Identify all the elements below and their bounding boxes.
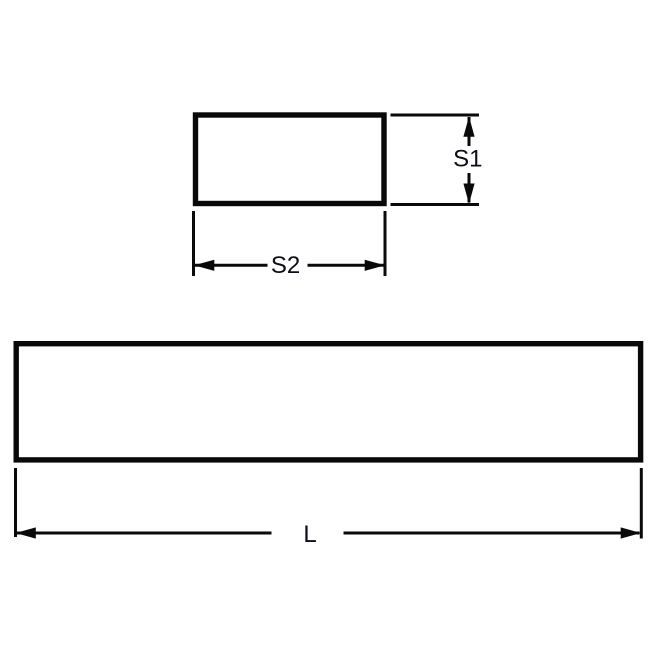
svg-text:S2: S2 [271, 252, 300, 279]
svg-text:S1: S1 [453, 146, 482, 173]
svg-text:L: L [303, 521, 316, 548]
